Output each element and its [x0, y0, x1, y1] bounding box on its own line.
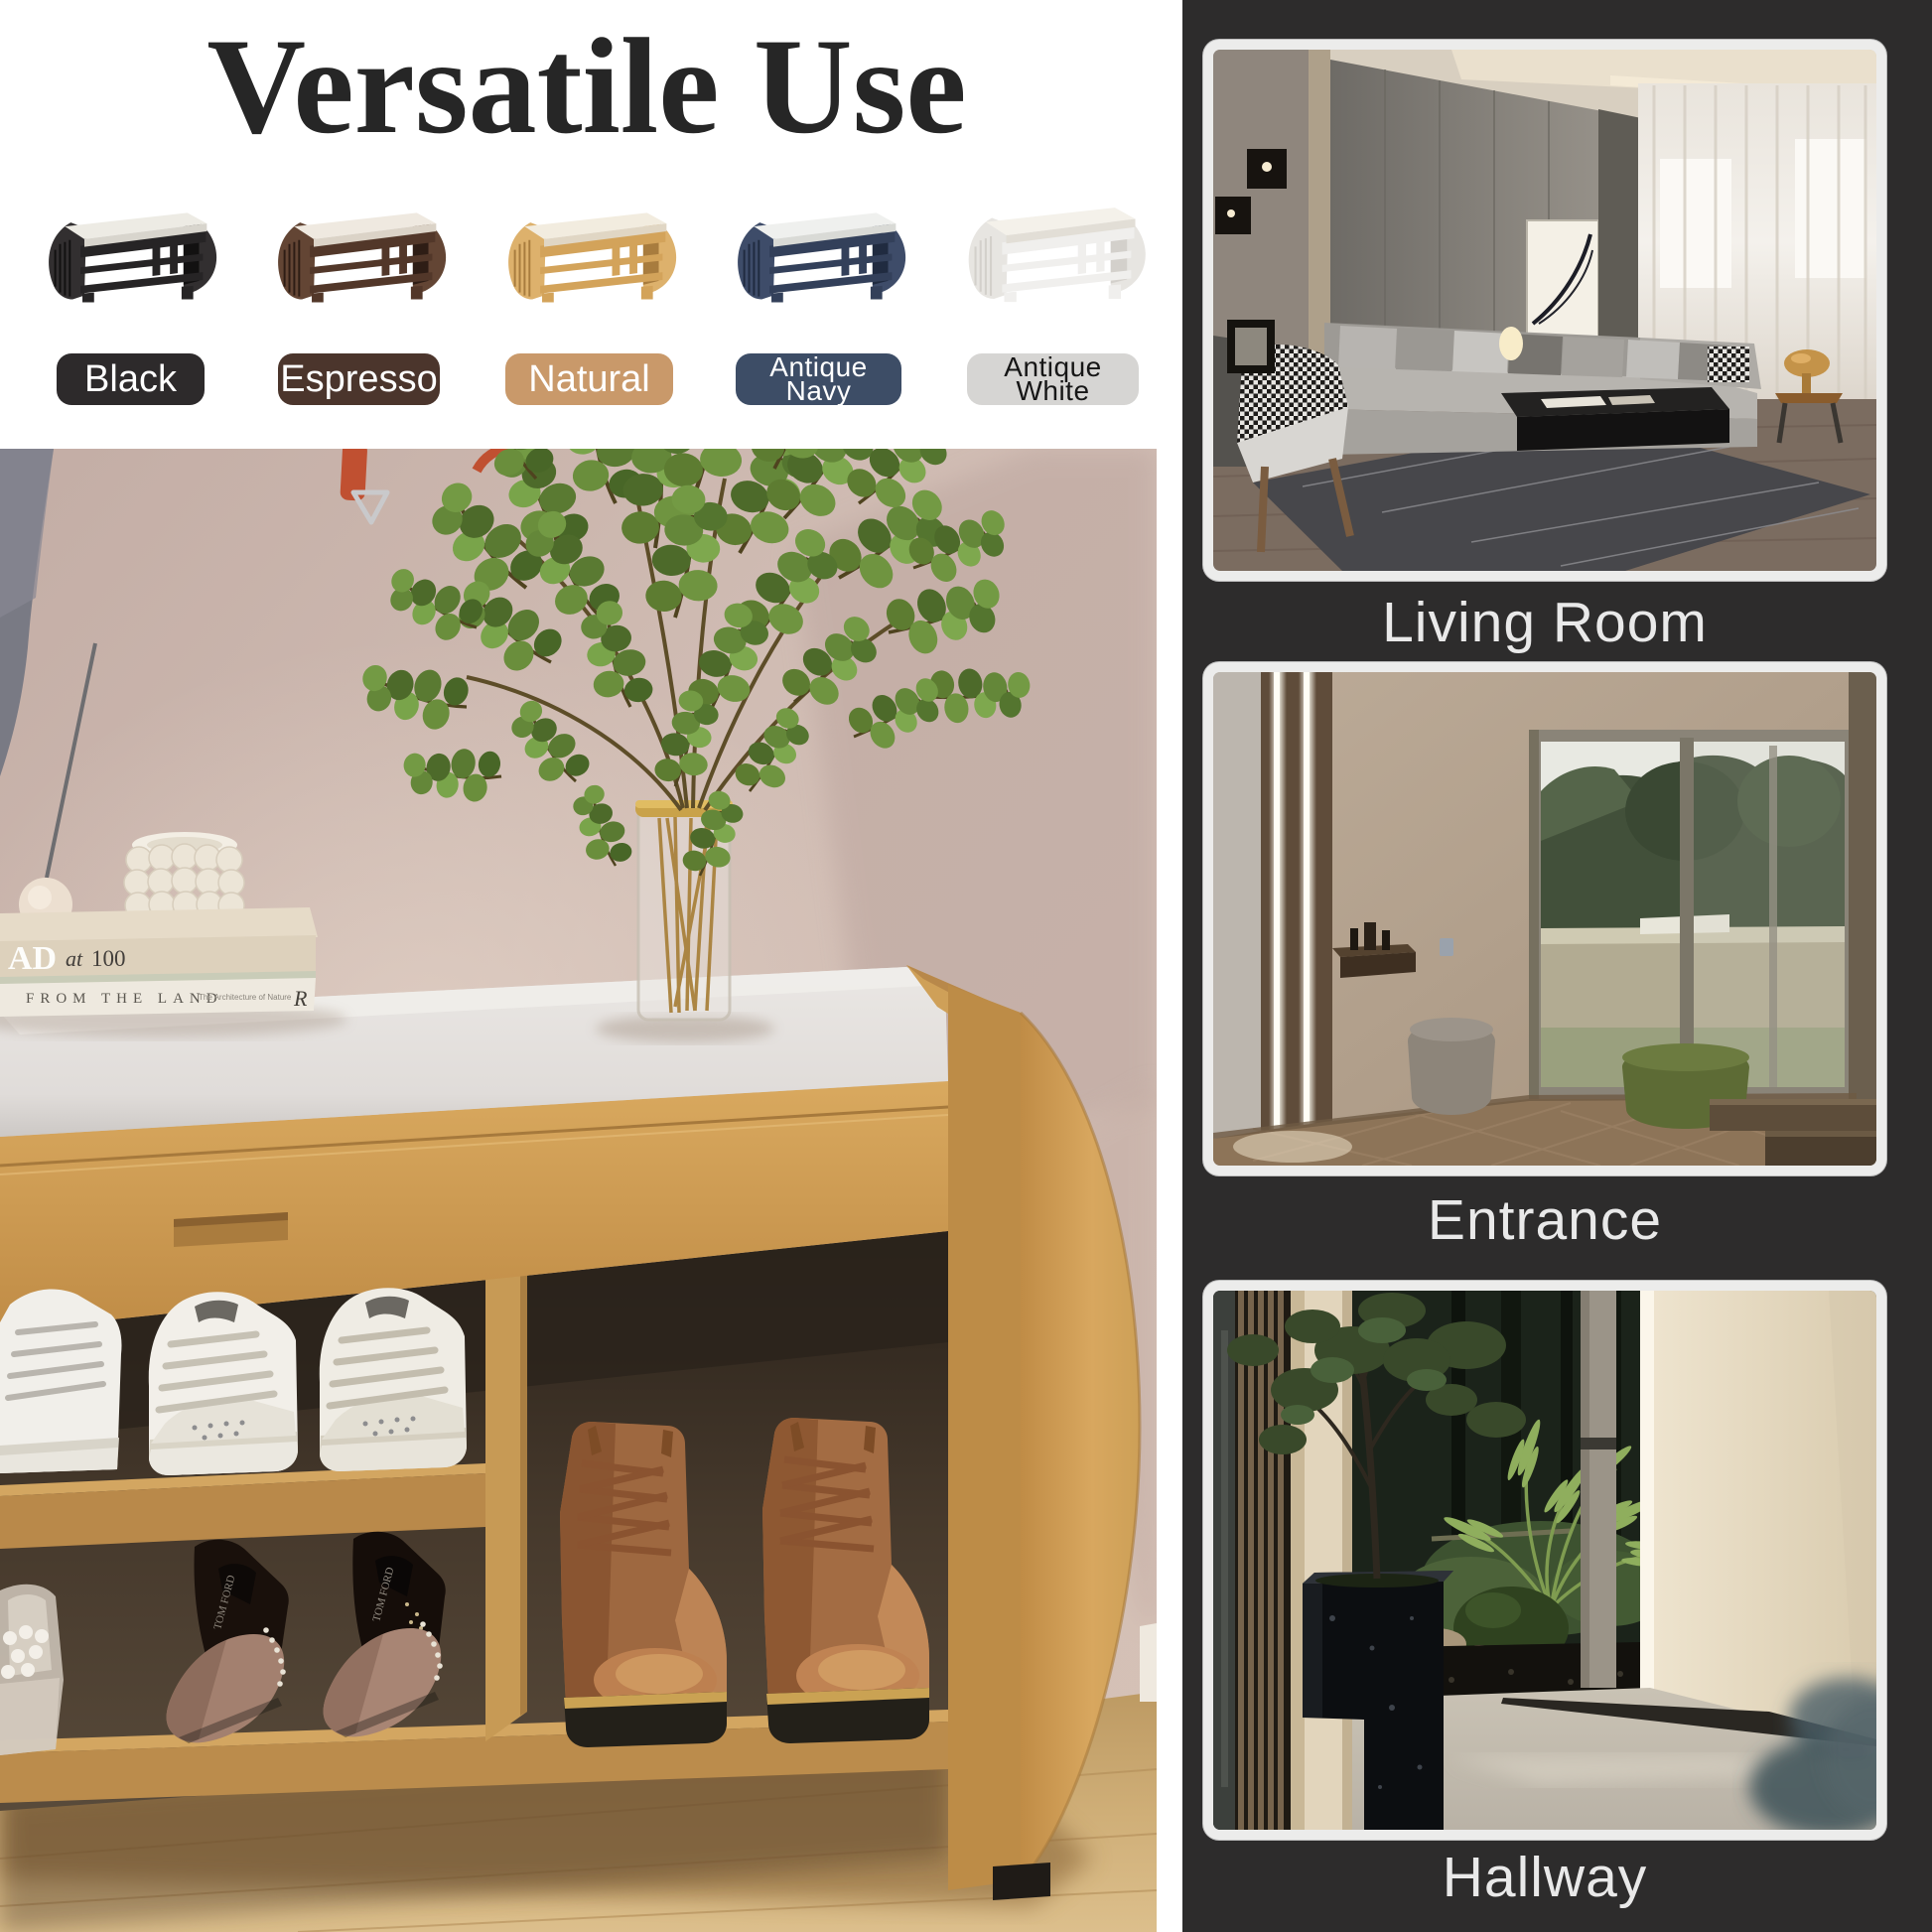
svg-text:The Architecture of Nature: The Architecture of Nature — [199, 993, 292, 1002]
svg-text:100: 100 — [91, 946, 126, 971]
svg-text:at: at — [66, 946, 83, 971]
svg-text:AD: AD — [8, 940, 57, 977]
svg-text:R: R — [293, 986, 308, 1011]
svg-text:FROM THE LAND: FROM THE LAND — [26, 991, 223, 1007]
